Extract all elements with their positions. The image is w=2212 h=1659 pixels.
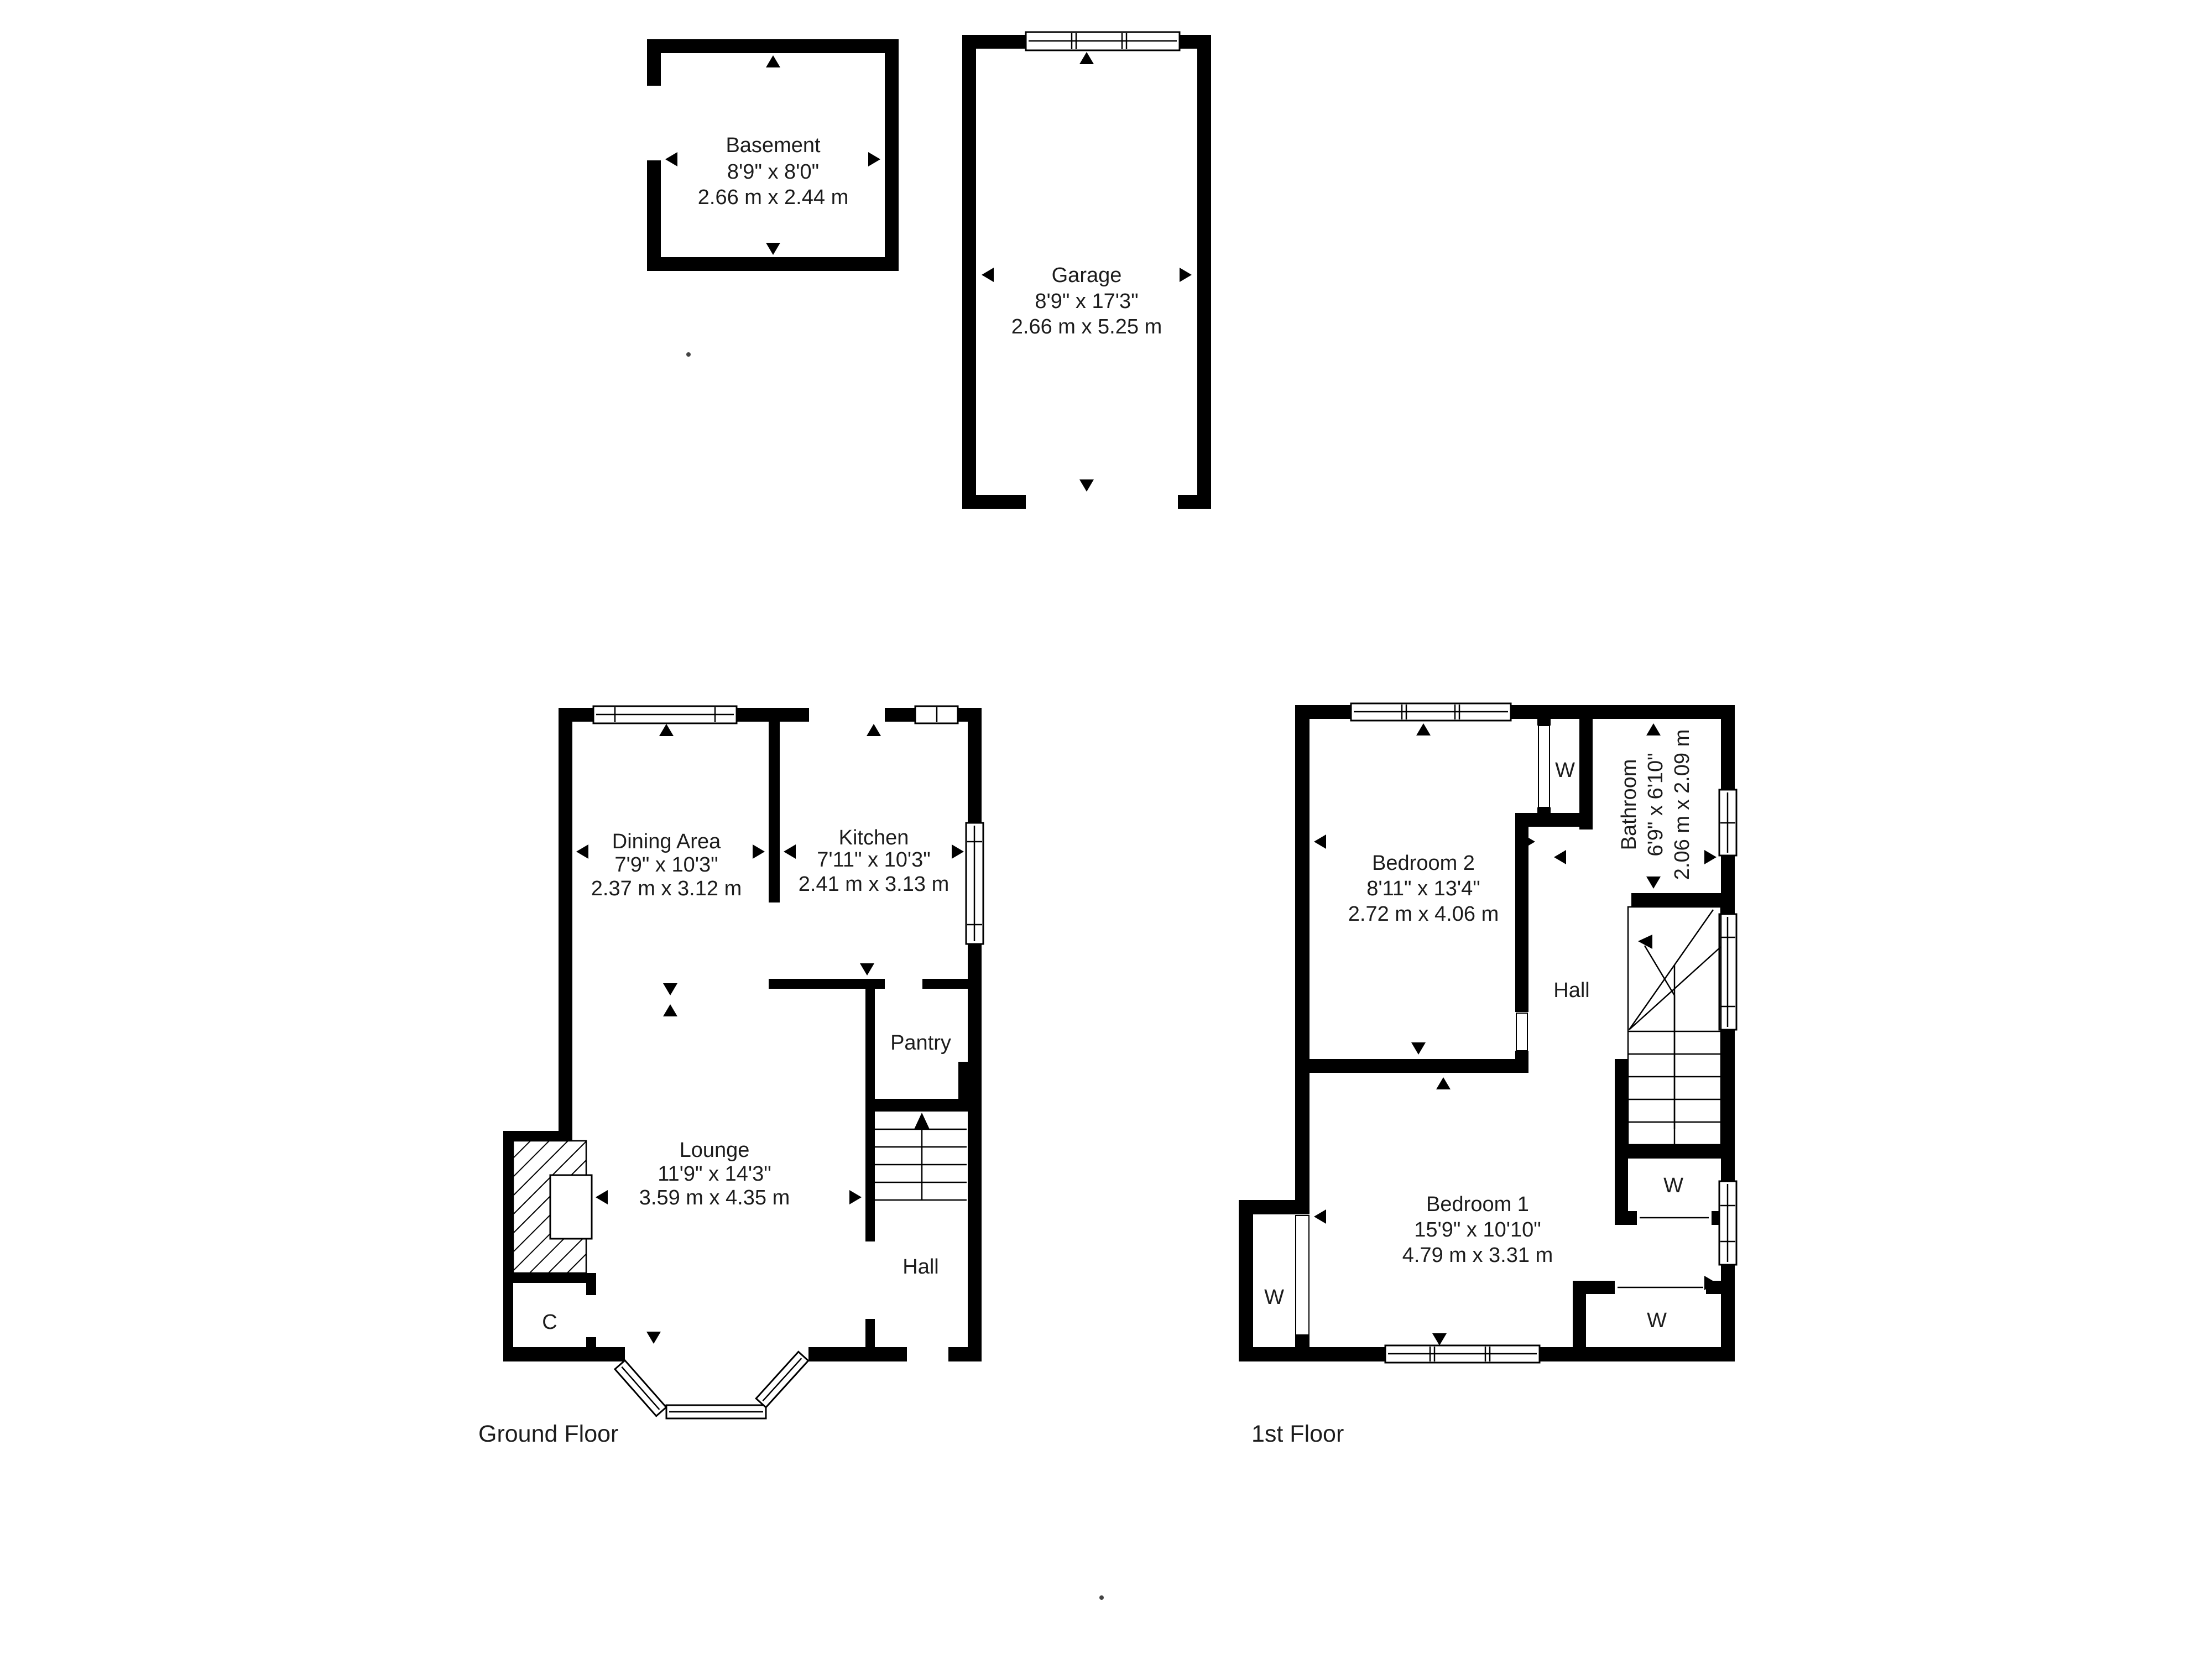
wall (948, 1347, 982, 1361)
wall (1515, 1051, 1528, 1059)
basement-plan: Basement 8'9" x 8'0" 2.66 m x 2.44 m (647, 39, 899, 271)
dining-window (593, 706, 737, 723)
dimension-arrow-left (576, 844, 588, 859)
wall (1540, 1347, 1735, 1361)
dimension-arrow-left (1314, 1209, 1326, 1224)
kitchen-imperial: 7'11" x 10'3" (817, 848, 931, 872)
wall (1631, 893, 1721, 907)
dot (1099, 1595, 1104, 1600)
dimension-arrow-right (952, 844, 964, 859)
stair-window (1719, 914, 1736, 1030)
stairs-first (1628, 907, 1721, 1145)
dimension-arrow-down (646, 1332, 661, 1344)
dimension-arrow-right (1704, 850, 1717, 864)
wall (503, 1131, 572, 1141)
wardrobe-label: W (1647, 1309, 1667, 1332)
wall (1615, 1159, 1628, 1225)
wall (958, 1062, 968, 1099)
bedroom2-metric: 2.72 m x 4.06 m (1348, 902, 1499, 926)
wall (1295, 1059, 1528, 1073)
basement-imperial: 8'9" x 8'0" (727, 160, 819, 184)
garage-metric: 2.66 m x 5.25 m (1011, 315, 1162, 338)
wall (586, 1283, 596, 1295)
hall-ground-name: Hall (902, 1255, 938, 1279)
bedroom2-name: Bedroom 2 (1372, 852, 1475, 875)
basement-name: Basement (726, 134, 821, 157)
bedroom1-name: Bedroom 1 (1426, 1193, 1529, 1216)
wall (1178, 495, 1211, 509)
dot (686, 352, 691, 357)
bedroom1-window-right (1719, 1181, 1736, 1265)
bedroom1-imperial: 15'9" x 10'10" (1414, 1218, 1541, 1241)
wall (769, 722, 780, 902)
wall (647, 160, 661, 271)
dimension-arrow-down (1079, 479, 1094, 492)
wall (808, 1347, 907, 1361)
kitchen-window-right (966, 823, 983, 944)
bedroom1-window-bottom (1385, 1345, 1540, 1363)
garage-plan: Garage 8'9" x 17'3" 2.66 m x 5.25 m (962, 32, 1211, 509)
wall (647, 257, 899, 271)
bathroom-name: Bathroom (1618, 759, 1641, 851)
wall (885, 39, 899, 271)
bathroom-window (1719, 790, 1736, 855)
kitchen-window-top (915, 706, 958, 723)
wall (1579, 705, 1593, 830)
ground-floor-label: Ground Floor (478, 1421, 618, 1447)
wall (1721, 854, 1735, 915)
wall (503, 1131, 513, 1283)
dimension-arrow-left (1554, 850, 1566, 864)
wardrobe-label: W (1663, 1174, 1683, 1197)
dimension-arrow-left (665, 152, 677, 166)
fireplace (550, 1175, 592, 1239)
dimension-arrow-down (1411, 1042, 1426, 1055)
wall (1515, 827, 1528, 1012)
ground-floor-plan: Dining Area 7'9" x 10'3" 2.37 m x 3.12 m… (478, 706, 983, 1447)
stairs-up-arrow (914, 1113, 930, 1129)
garage-name: Garage (1052, 264, 1122, 287)
dimension-arrow-down (766, 243, 780, 255)
wall (503, 1273, 596, 1283)
wall (1537, 705, 1551, 726)
bathroom-metric: 2.06 m x 2.09 m (1671, 729, 1694, 880)
dining-imperial: 7'9" x 10'3" (614, 853, 718, 877)
wall (737, 708, 809, 722)
dimension-arrow-down (860, 963, 874, 975)
bathroom-imperial: 6'9" x 6'10" (1644, 753, 1667, 856)
dimension-arrow-up (659, 724, 674, 736)
wall (1239, 1200, 1253, 1361)
wall (1721, 705, 1735, 791)
bedroom2-door (1516, 1013, 1527, 1051)
wall (962, 35, 976, 509)
bay-window (615, 1352, 808, 1418)
dimension-arrow-right (753, 844, 765, 859)
wall (1573, 1281, 1615, 1294)
kitchen-name: Kitchen (839, 826, 909, 849)
stairs-ground (875, 1113, 967, 1200)
wall (1721, 1265, 1735, 1361)
wardrobe-label: W (1555, 759, 1575, 782)
wall (647, 39, 661, 86)
wall (1628, 1211, 1637, 1225)
wardrobe-door (1538, 726, 1550, 807)
dimension-arrow-down (1646, 877, 1661, 889)
floorplan-svg: Basement 8'9" x 8'0" 2.66 m x 2.44 m Gar… (0, 0, 2212, 1659)
dimension-arrow-left (1314, 834, 1326, 849)
garage-window (1026, 32, 1180, 50)
wall (1295, 705, 1310, 1200)
dimension-arrow-left (596, 1190, 608, 1204)
dimension-arrow-down (1432, 1333, 1447, 1345)
dining-name: Dining Area (612, 830, 721, 853)
dimension-arrow-up (766, 55, 780, 67)
wall (885, 708, 915, 722)
wall (1721, 1030, 1735, 1182)
wall (1239, 1347, 1385, 1361)
dimension-arrow-right (1523, 834, 1535, 849)
dimension-arrow-up (663, 1004, 677, 1016)
wall (968, 943, 982, 1361)
wall (559, 708, 572, 1131)
first-floor-plan: Bedroom 2 8'11" x 13'4" 2.72 m x 4.06 m … (1239, 703, 1736, 1447)
dimension-arrow-down (663, 983, 677, 995)
lounge-name: Lounge (680, 1139, 750, 1162)
dimension-arrow-left (982, 268, 994, 282)
bedroom2-window (1351, 703, 1511, 721)
dimension-arrow-up (1416, 723, 1431, 735)
wall (865, 1099, 968, 1112)
floorplan-page: Basement 8'9" x 8'0" 2.66 m x 2.44 m Gar… (0, 0, 2212, 1659)
lounge-imperial: 11'9" x 14'3" (658, 1162, 771, 1186)
basement-metric: 2.66 m x 2.44 m (698, 186, 848, 209)
wall (922, 979, 968, 989)
dimension-arrow-up (1079, 52, 1094, 64)
dimension-arrow-right (849, 1190, 862, 1204)
hall-first-name: Hall (1553, 979, 1589, 1002)
wall (865, 1319, 875, 1347)
dimension-arrow-up (1436, 1077, 1451, 1089)
wall (1615, 1059, 1628, 1159)
wall (503, 1347, 625, 1361)
wall (647, 39, 899, 53)
bedroom1-metric: 4.79 m x 3.31 m (1402, 1244, 1553, 1267)
cupboard-label: C (542, 1311, 557, 1334)
dimension-arrow-up (1646, 723, 1661, 735)
wall (1197, 35, 1211, 509)
garage-imperial: 8'9" x 17'3" (1035, 290, 1138, 313)
dimension-arrow-right (868, 152, 880, 166)
wall (962, 495, 1026, 509)
first-floor-label: 1st Floor (1251, 1421, 1344, 1447)
dining-metric: 2.37 m x 3.12 m (591, 877, 742, 900)
bedroom2-imperial: 8'11" x 13'4" (1366, 877, 1480, 900)
wardrobe-door (1296, 1215, 1309, 1335)
kitchen-metric: 2.41 m x 3.13 m (799, 873, 949, 896)
pantry-name: Pantry (890, 1031, 951, 1055)
dimension-arrow-left (784, 844, 796, 859)
wall (1615, 1145, 1721, 1159)
wall (968, 708, 982, 824)
wardrobe-label: W (1264, 1286, 1284, 1309)
dimension-arrow-right (1180, 268, 1192, 282)
dimension-arrow-up (867, 724, 881, 736)
lounge-metric: 3.59 m x 4.35 m (639, 1186, 790, 1209)
